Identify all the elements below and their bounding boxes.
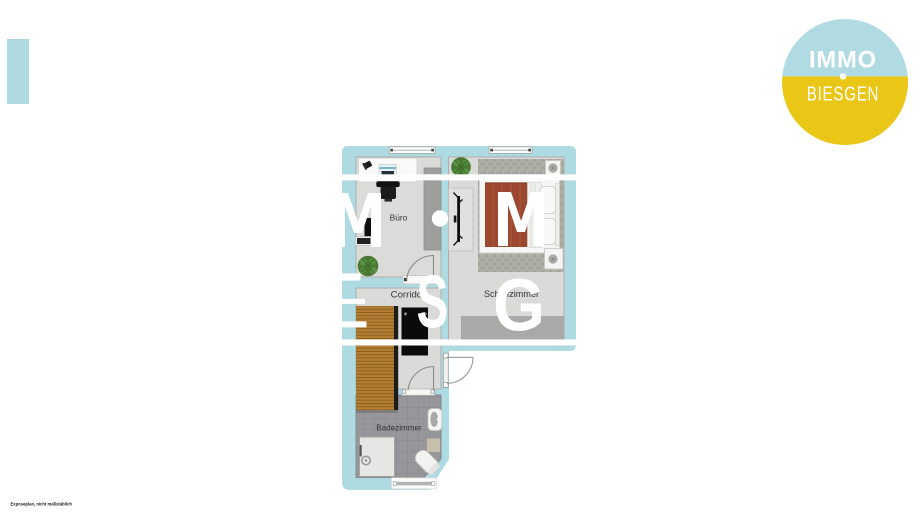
svg-text:BIESGEN: BIESGEN <box>807 82 879 105</box>
svg-text:Exposeplan, nicht maßstäblich: Exposeplan, nicht maßstäblich <box>11 501 73 506</box>
svg-text:Büro: Büro <box>390 213 408 223</box>
svg-text:Badezimmer: Badezimmer <box>376 424 422 433</box>
svg-text:S: S <box>417 261 449 344</box>
svg-text:IMMO: IMMO <box>809 47 877 74</box>
svg-text:G: G <box>493 263 545 346</box>
